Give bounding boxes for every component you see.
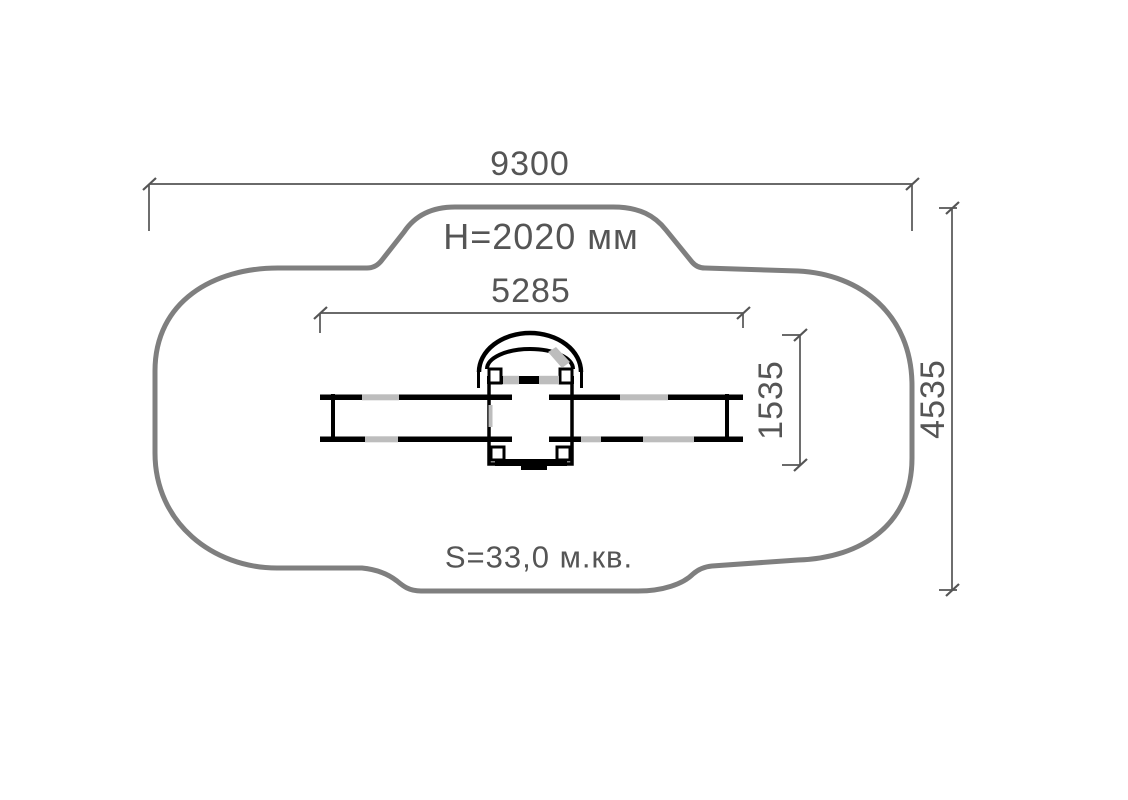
area-label: S=33,0 м.кв. (445, 542, 633, 573)
right-beam-end-bar (725, 394, 729, 442)
safety-zone-outline (155, 207, 912, 591)
overall-width-label: 9300 (490, 147, 570, 181)
inner-width-label: 5285 (491, 274, 571, 308)
drawing-canvas: 9300 H=2020 мм 5285 4535 1535 S=33,0 м.к… (0, 0, 1128, 800)
tower-left-top-stub (472, 395, 512, 401)
equipment-height-label: H=2020 мм (443, 219, 639, 255)
post-top-right (560, 369, 572, 383)
post-bottom-left (491, 447, 504, 460)
inner-depth-label: 1535 (754, 360, 788, 440)
dimension-inner-width (314, 307, 750, 333)
arch-outer-arc (479, 333, 581, 372)
left-beam-end-bar (331, 394, 335, 442)
equipment-plan (320, 333, 743, 470)
tower-right-top-stub (549, 395, 589, 401)
tower-bottom-step (521, 464, 547, 470)
plan-drawing-svg (0, 0, 1128, 800)
post-bottom-right (557, 447, 570, 460)
post-top-left (489, 369, 501, 383)
overall-height-label: 4535 (916, 359, 950, 439)
tower-left-bottom-stub (472, 437, 512, 443)
